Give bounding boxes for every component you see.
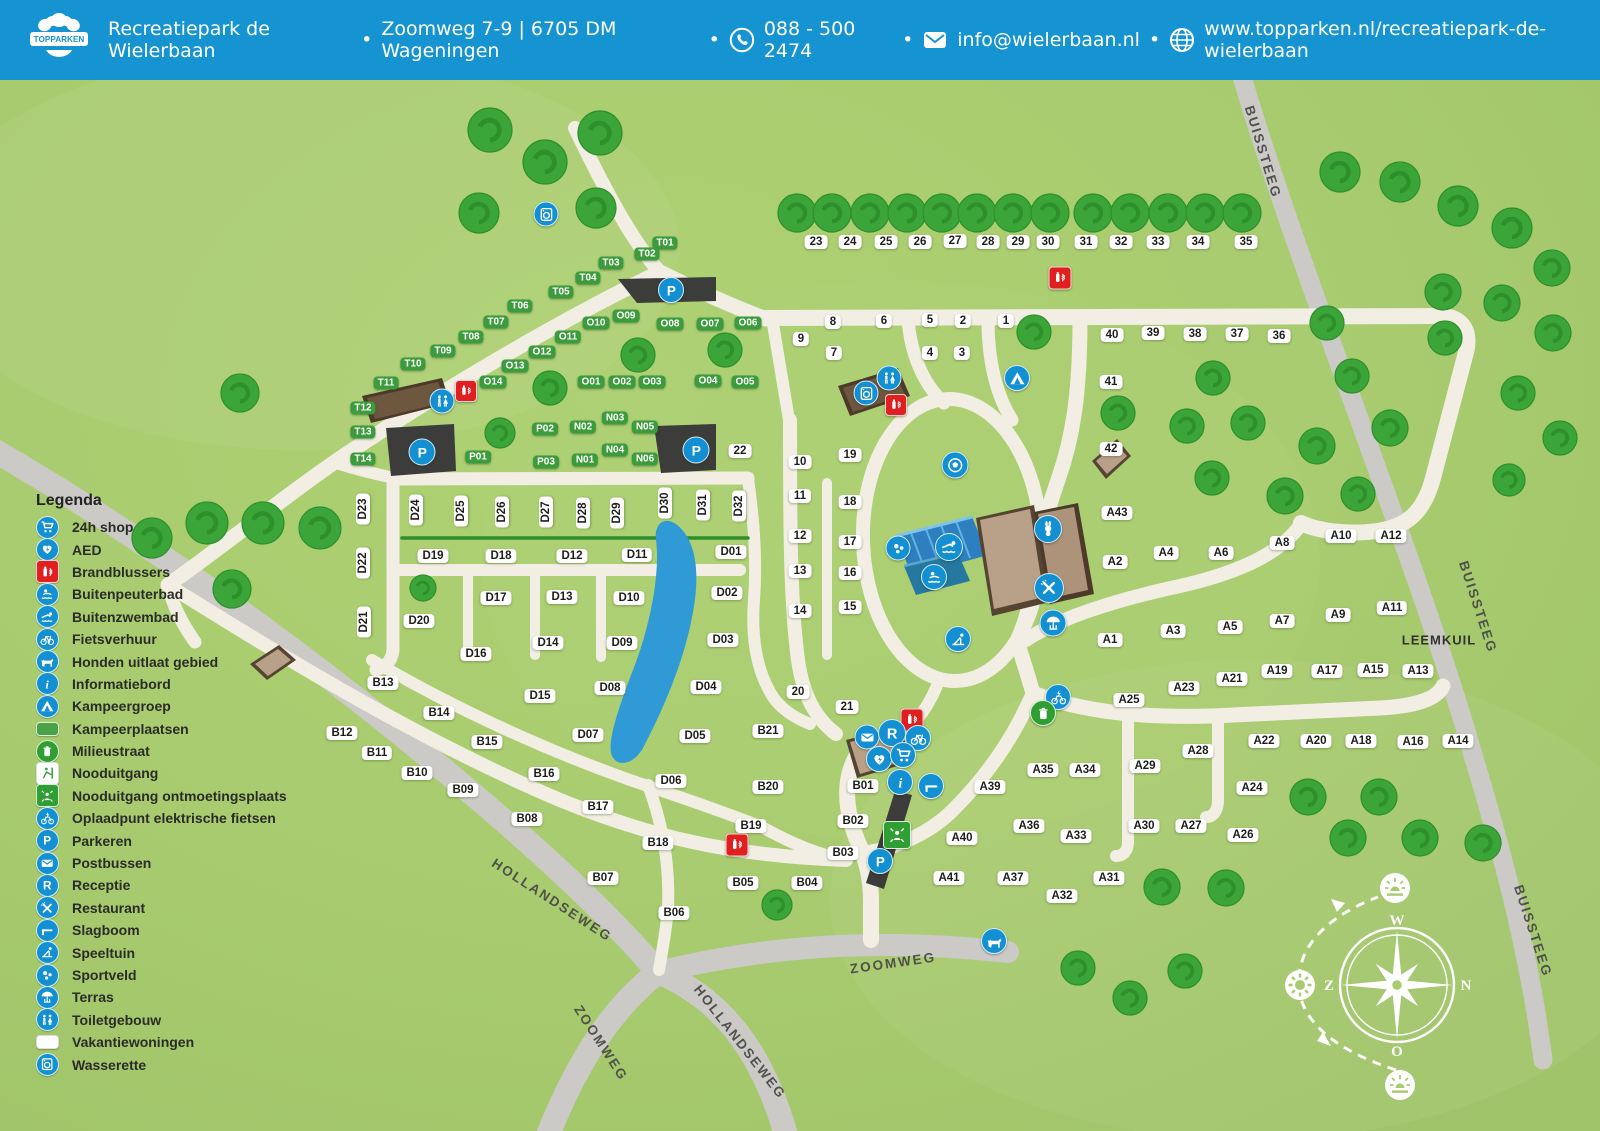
park-address: Zoomweg 7-9 | 6705 DM Wageningen — [381, 18, 699, 62]
legend-item-honden: Honden uitlaat gebied — [36, 650, 287, 672]
plot-label-O01: O01 — [578, 376, 605, 389]
svg-text:P: P — [667, 283, 676, 298]
plot-label-D06: D06 — [655, 774, 686, 788]
plot-label-39: 39 — [1142, 326, 1165, 340]
compass-label-north: N — [1461, 978, 1472, 994]
parkeren-icon: P — [867, 848, 893, 874]
plot-label-N01: N01 — [572, 454, 598, 467]
tree — [1168, 954, 1202, 988]
tree — [1031, 194, 1069, 232]
plot-label-36: 36 — [1268, 329, 1291, 343]
plot-label-O09: O09 — [613, 310, 640, 323]
legend-item-label: Brandblussers — [72, 564, 170, 580]
plot-label-P02: P02 — [532, 423, 558, 436]
legend-item-label: Kampeerplaatsen — [72, 721, 189, 737]
plot-label-D09: D09 — [606, 636, 637, 650]
phone-icon — [729, 27, 755, 53]
plot-label-A14: A14 — [1442, 734, 1473, 748]
tree — [1341, 477, 1375, 511]
plot-label-9: 9 — [793, 332, 809, 346]
park-map-screenshot: W N Z O T01T02T03T04T05T06T07T08T09T10T1… — [0, 0, 1600, 1131]
wasserette-icon — [854, 381, 879, 406]
plot-label-O10: O10 — [583, 317, 610, 330]
plot-label-29: 29 — [1007, 235, 1030, 249]
toiletgebouw-icon — [877, 366, 902, 391]
plot-label-A10: A10 — [1325, 529, 1356, 543]
plot-label-26: 26 — [909, 235, 932, 249]
tree — [778, 194, 816, 232]
ontmoetingsplaats-icon — [883, 821, 911, 849]
globe-icon — [1169, 27, 1195, 53]
plot-label-37: 37 — [1226, 327, 1249, 341]
plot-label-A15: A15 — [1357, 663, 1388, 677]
plot-label-A27: A27 — [1175, 819, 1206, 833]
plot-label-D12: D12 — [556, 549, 587, 563]
plot-label-8: 8 — [825, 315, 841, 329]
plot-label-14: 14 — [789, 604, 812, 618]
tree — [1186, 194, 1224, 232]
plot-label-B12: B12 — [326, 726, 357, 740]
plot-label-B14: B14 — [423, 706, 454, 720]
plot-label-D19: D19 — [417, 549, 448, 563]
legend-item-label: Sportveld — [72, 967, 137, 983]
plot-label-6: 6 — [876, 314, 892, 328]
svg-text:R: R — [887, 727, 898, 743]
legend-item-label: Restaurant — [72, 900, 145, 916]
tree — [1223, 194, 1261, 232]
svg-text:i: i — [46, 678, 50, 691]
plot-label-N02: N02 — [570, 421, 596, 434]
tree — [410, 575, 436, 601]
plot-label-D30: D30 — [658, 487, 672, 518]
toiletgebouw-icon — [430, 389, 455, 414]
buitenpeuterbad-icon — [921, 564, 947, 590]
plot-label-2: 2 — [955, 314, 971, 328]
plot-label-B21: B21 — [752, 724, 783, 738]
plot-label-D04: D04 — [690, 680, 721, 694]
plot-label-T09: T09 — [430, 345, 455, 358]
logo-text: TOPPARKEN — [34, 35, 85, 44]
plot-label-A32: A32 — [1046, 889, 1077, 903]
plot-label-5: 5 — [922, 313, 938, 327]
plot-label-B08: B08 — [511, 812, 542, 826]
plot-label-D03: D03 — [707, 633, 738, 647]
plot-label-A16: A16 — [1397, 735, 1428, 749]
tree — [621, 338, 655, 372]
plot-label-D25: D25 — [454, 495, 468, 526]
legend-item-label: AED — [72, 542, 102, 558]
tree — [1330, 820, 1366, 856]
legend-item-receptie: RReceptie — [36, 874, 287, 896]
aed-icon — [866, 746, 892, 772]
plot-label-1: 1 — [998, 314, 1014, 328]
legend-item-informatiebord: iInformatiebord — [36, 673, 287, 695]
wasserette-icon — [534, 202, 559, 227]
legend-item-nooduitgang: Nooduitgang — [36, 762, 287, 784]
tree — [1493, 464, 1525, 496]
plot-label-A39: A39 — [974, 780, 1005, 794]
plot-label-27: 27 — [944, 234, 967, 248]
shop24-icon — [890, 742, 916, 768]
plot-label-A29: A29 — [1129, 759, 1160, 773]
svg-text:P: P — [691, 442, 700, 458]
buitenzwembad-icon — [36, 605, 59, 628]
plot-label-42: 42 — [1100, 442, 1123, 456]
legend-item-label: Vakantiewoningen — [72, 1034, 194, 1050]
legend-item-label: Informatiebord — [72, 676, 171, 692]
tree — [923, 194, 961, 232]
plot-label-T05: T05 — [548, 286, 573, 299]
plot-label-34: 34 — [1187, 235, 1210, 249]
plot-label-P01: P01 — [465, 451, 491, 464]
fietsverhuur-icon — [36, 628, 59, 651]
plot-label-16: 16 — [839, 566, 862, 580]
tree — [1543, 421, 1577, 455]
legend-item-parkeren: PParkeren — [36, 829, 287, 851]
plot-label-T14: T14 — [350, 453, 375, 466]
compass-label-west: W — [1390, 913, 1405, 929]
plot-label-35: 35 — [1235, 235, 1258, 249]
plot-label-O14: O14 — [480, 376, 507, 389]
legend-item-shop24: 24h shop — [36, 516, 287, 538]
legend-item-fietsverhuur: Fietsverhuur — [36, 628, 287, 650]
legend-item-aed: AED — [36, 538, 287, 560]
plot-label-O02: O02 — [609, 376, 636, 389]
plot-label-30: 30 — [1037, 235, 1060, 249]
plot-label-A22: A22 — [1248, 734, 1279, 748]
legend-item-toiletgebouw: Toiletgebouw — [36, 1009, 287, 1031]
plot-label-T13: T13 — [350, 426, 375, 439]
plot-label-A34: A34 — [1069, 763, 1100, 777]
plot-label-O08: O08 — [657, 318, 684, 331]
plot-label-24: 24 — [839, 235, 862, 249]
tree — [762, 890, 792, 920]
tree — [1380, 162, 1420, 202]
plot-label-A3: A3 — [1161, 624, 1186, 638]
plot-label-D07: D07 — [572, 728, 603, 742]
mail-icon — [922, 27, 948, 53]
plot-label-N03: N03 — [602, 412, 628, 425]
plot-label-A18: A18 — [1345, 734, 1376, 748]
tree — [958, 194, 996, 232]
plot-label-T02: T02 — [634, 248, 659, 261]
legend-item-postbussen: Postbussen — [36, 852, 287, 874]
plot-label-D23: D23 — [356, 493, 370, 524]
plot-label-T11: T11 — [374, 377, 399, 390]
brandblussers-icon — [455, 380, 477, 402]
plot-label-15: 15 — [839, 600, 862, 614]
legend-item-label: Terras — [72, 989, 114, 1005]
sunset-icon — [1385, 1070, 1415, 1100]
plot-label-B19: B19 — [735, 819, 766, 833]
plot-label-B20: B20 — [752, 780, 783, 794]
plot-label-T08: T08 — [458, 331, 483, 344]
slagboom-icon — [36, 919, 59, 942]
plot-label-B18: B18 — [642, 836, 673, 850]
plot-label-B03: B03 — [827, 846, 858, 860]
legend-item-label: Buitenpeuterbad — [72, 586, 183, 602]
plot-label-P03: P03 — [533, 456, 559, 469]
plot-label-O04: O04 — [695, 375, 722, 388]
plot-label-O03: O03 — [639, 376, 666, 389]
restaurant-icon — [1034, 573, 1064, 603]
tree — [1149, 194, 1187, 232]
plot-label-A31: A31 — [1093, 871, 1124, 885]
plot-label-A8: A8 — [1270, 536, 1295, 550]
plot-label-D29: D29 — [610, 497, 624, 528]
kampeergroep-icon — [36, 695, 59, 718]
legend-item-ontmoetingsplaats: Nooduitgang ontmoetingsplaats — [36, 785, 287, 807]
plot-label-A33: A33 — [1060, 829, 1091, 843]
speelparadijs-icon — [1034, 515, 1062, 543]
plot-label-A6: A6 — [1209, 546, 1234, 560]
plot-label-A41: A41 — [933, 871, 964, 885]
plot-label-A1: A1 — [1098, 633, 1123, 647]
plot-label-18: 18 — [839, 495, 862, 509]
tree — [1501, 376, 1535, 410]
plot-label-D05: D05 — [679, 729, 710, 743]
parkeren-icon: P — [658, 277, 684, 303]
tree — [485, 418, 515, 448]
toiletgebouw-icon — [36, 1008, 59, 1031]
legend-item-kampeerplaatsen: Kampeerplaatsen — [36, 718, 287, 740]
plot-label-D31: D31 — [696, 489, 710, 520]
parkeren-icon: P — [683, 437, 710, 464]
plot-label-B15: B15 — [471, 735, 502, 749]
legend-item-label: Nooduitgang — [72, 765, 158, 781]
plot-label-B16: B16 — [528, 767, 559, 781]
honden-icon — [981, 928, 1007, 954]
legend-item-wasserette: Wasserette — [36, 1053, 287, 1075]
plot-label-19: 19 — [839, 448, 862, 462]
tree — [299, 507, 341, 549]
tree — [1402, 820, 1438, 856]
plot-label-N06: N06 — [632, 453, 658, 466]
plot-label-D16: D16 — [460, 647, 491, 661]
plot-label-A21: A21 — [1216, 672, 1247, 686]
phone-number[interactable]: 088 - 500 2474 — [764, 18, 893, 62]
plot-label-D13: D13 — [546, 590, 577, 604]
tree — [459, 193, 499, 233]
tree — [1535, 315, 1571, 351]
kampeergroep-icon — [1004, 365, 1030, 391]
plot-label-A4: A4 — [1154, 546, 1179, 560]
plot-label-4: 4 — [922, 346, 938, 360]
plot-label-41: 41 — [1100, 375, 1123, 389]
tree — [708, 333, 742, 367]
tree — [1372, 410, 1408, 446]
plot-label-A35: A35 — [1027, 763, 1058, 777]
tree — [851, 194, 889, 232]
plot-label-T07: T07 — [483, 316, 508, 329]
plot-label-O11: O11 — [555, 331, 581, 344]
brandblussers-icon — [726, 834, 749, 857]
tree — [1492, 208, 1532, 248]
plot-label-D24: D24 — [409, 494, 423, 525]
svg-text:P: P — [876, 854, 885, 869]
topparken-logo: TOPPARKEN — [22, 8, 96, 72]
legend-item-kampeergroep: Kampeergroep — [36, 695, 287, 717]
tree — [1534, 250, 1570, 286]
tree — [1208, 870, 1244, 906]
plot-label-11: 11 — [789, 489, 811, 503]
plot-label-T10: T10 — [400, 358, 425, 371]
plot-label-B13: B13 — [367, 676, 398, 690]
plot-label-O13: O13 — [502, 360, 529, 373]
plot-label-A7: A7 — [1270, 614, 1295, 628]
plot-label-B11: B11 — [362, 746, 392, 760]
plot-label-O05: O05 — [732, 376, 759, 389]
shop24-icon — [36, 516, 59, 539]
plot-label-21: 21 — [836, 700, 859, 714]
plot-label-A36: A36 — [1013, 819, 1044, 833]
plot-label-D15: D15 — [524, 689, 555, 703]
plot-label-O06: O06 — [735, 317, 762, 330]
plot-label-O12: O12 — [529, 346, 556, 359]
legend-item-label: Toiletgebouw — [72, 1012, 161, 1028]
receptie-icon: R — [36, 874, 59, 897]
svg-text:P: P — [44, 835, 52, 848]
wasserette-icon — [36, 1053, 59, 1076]
legend-item-label: Wasserette — [72, 1057, 146, 1073]
brandblussers-icon — [36, 560, 59, 583]
slagboom-icon — [918, 773, 944, 799]
plot-label-B02: B02 — [837, 814, 868, 828]
legend-item-vakantiewoningen: Vakantiewoningen — [36, 1031, 287, 1053]
tree — [1101, 396, 1135, 430]
plot-label-17: 17 — [839, 535, 862, 549]
plot-label-D21: D21 — [357, 606, 371, 637]
plot-label-A26: A26 — [1227, 828, 1258, 842]
plot-label-A20: A20 — [1300, 734, 1331, 748]
tree — [1111, 194, 1149, 232]
plot-label-23: 23 — [805, 235, 828, 249]
plot-label-T12: T12 — [350, 402, 375, 415]
plot-label-A9: A9 — [1326, 608, 1351, 622]
plot-label-B09: B09 — [447, 783, 478, 797]
kampeerplaatsen-icon — [36, 722, 59, 736]
plot-label-D14: D14 — [532, 636, 563, 650]
plot-label-D11: D11 — [622, 548, 652, 562]
tree — [1074, 194, 1112, 232]
plot-label-A5: A5 — [1218, 620, 1243, 634]
tree — [1267, 478, 1303, 514]
tree — [1144, 869, 1180, 905]
tree — [1438, 186, 1478, 226]
terras-icon — [36, 986, 59, 1009]
plot-label-A43: A43 — [1101, 506, 1132, 520]
plot-label-B10: B10 — [401, 766, 432, 780]
legend-item-brandblussers: Brandblussers — [36, 561, 287, 583]
website-url[interactable]: www.topparken.nl/recreatiepark-de-wieler… — [1204, 18, 1600, 62]
plot-label-B01: B01 — [847, 779, 878, 793]
brandblussers-icon — [1049, 267, 1072, 290]
plot-label-A12: A12 — [1375, 529, 1406, 543]
oplaadpunt-icon — [36, 807, 59, 830]
legend-item-restaurant: Restaurant — [36, 897, 287, 919]
tree — [1310, 306, 1344, 340]
plot-label-A2: A2 — [1103, 555, 1128, 569]
legend-item-label: Parkeren — [72, 833, 132, 849]
plot-label-7: 7 — [826, 346, 842, 360]
plot-label-B04: B04 — [791, 876, 822, 890]
plot-label-N04: N04 — [602, 444, 628, 457]
parkeren-icon: P — [36, 829, 59, 852]
tree — [1428, 321, 1462, 355]
legend-item-label: Buitenzwembad — [72, 609, 179, 625]
terras-icon — [1040, 610, 1067, 637]
legend-item-label: Honden uitlaat gebied — [72, 654, 218, 670]
plot-label-T04: T04 — [575, 272, 600, 285]
legend: Legenda 24h shopAEDBrandblussersBuitenpe… — [36, 492, 287, 1076]
plot-label-D20: D20 — [403, 614, 434, 628]
plot-label-25: 25 — [875, 235, 898, 249]
aed-icon — [36, 538, 59, 561]
tree — [1320, 152, 1360, 192]
tree — [578, 111, 622, 155]
legend-item-label: Oplaadpunt elektrische fietsen — [72, 810, 276, 826]
plot-label-A13: A13 — [1402, 664, 1433, 678]
plot-label-10: 10 — [789, 455, 812, 469]
legend-title: Legenda — [36, 492, 287, 510]
legend-item-buitenpeuterbad: Buitenpeuterbad — [36, 583, 287, 605]
plot-label-D10: D10 — [613, 591, 644, 605]
tree — [1484, 285, 1520, 321]
sunrise-icon — [1380, 873, 1410, 903]
plot-label-D27: D27 — [539, 496, 553, 527]
nooduitgang-icon — [36, 762, 59, 785]
sportveld-icon — [36, 964, 59, 987]
tree — [1113, 981, 1147, 1015]
email-address[interactable]: info@wielerbaan.nl — [957, 29, 1140, 51]
compass-label-south: Z — [1324, 978, 1334, 994]
tree — [1170, 409, 1204, 443]
plot-label-B05: B05 — [727, 876, 758, 890]
tree — [1361, 779, 1397, 815]
plot-label-3: 3 — [954, 346, 970, 360]
plot-label-A19: A19 — [1261, 664, 1292, 678]
legend-item-buitenzwembad: Buitenzwembad — [36, 606, 287, 628]
tree — [1231, 406, 1265, 440]
plot-label-A24: A24 — [1236, 781, 1267, 795]
legend-item-label: Fietsverhuur — [72, 631, 157, 647]
tree — [1425, 274, 1461, 310]
informatiebord-icon: i — [36, 672, 59, 695]
legend-item-label: Kampeergroep — [72, 698, 171, 714]
speeltuin-icon — [945, 626, 971, 652]
plot-label-B17: B17 — [582, 800, 613, 814]
informatiebord-icon: i — [887, 769, 913, 795]
legend-item-label: Receptie — [72, 877, 130, 893]
tree — [576, 188, 616, 228]
speeltuin-icon — [36, 941, 59, 964]
sun-icon — [1285, 970, 1315, 1000]
tree — [1061, 951, 1095, 985]
svg-text:P: P — [417, 444, 426, 460]
tree — [813, 194, 851, 232]
plot-label-40: 40 — [1101, 328, 1124, 342]
plot-label-28: 28 — [977, 235, 1000, 249]
ontmoetingsplaats-icon — [36, 784, 59, 807]
tree — [994, 194, 1032, 232]
legend-item-sportveld: Sportveld — [36, 964, 287, 986]
plot-label-D28: D28 — [576, 497, 590, 528]
legend-item-terras: Terras — [36, 986, 287, 1008]
plot-label-A17: A17 — [1311, 664, 1342, 678]
plot-label-A40: A40 — [946, 831, 977, 845]
tree — [888, 194, 926, 232]
parkeren-icon: P — [409, 439, 436, 466]
